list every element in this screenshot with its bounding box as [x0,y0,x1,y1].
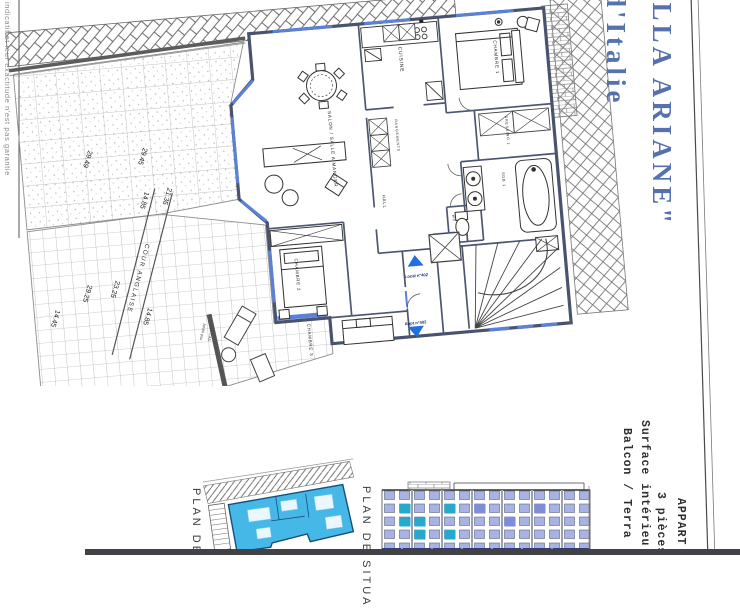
disclaimer-text: indicatif et leur exactitude n'est pas g… [3,2,12,176]
floor-plan-tilted-group: Local n°402 Appt n°402 SALON / SALLE A M… [4,0,632,408]
scan-edge-bar [85,549,740,555]
entry-closets [383,23,416,42]
bed-chambre3 [342,316,394,344]
mini-plan-left-label: PLAN DE [190,488,202,556]
info-surface: Surface intérieu [638,420,651,546]
mini-plan-right-label: PLAN DE SITUA [360,486,372,608]
terrace-upper [12,42,258,230]
info-pieces: 3 pièces [654,492,667,555]
info-balcon: Balcon / Terra [620,428,633,539]
rangements-closets [369,118,391,167]
label-wc: WC [451,214,456,222]
mini-facade-plan [382,482,590,555]
info-appart: APPART [674,498,687,545]
scanned-floor-plan-sheet: { "title": { "line1": "ILLA ARIANE\"", "… [0,0,740,555]
mini-level-plan [203,459,364,555]
sheet-subtitle: d'Italie [600,0,631,107]
sheet-title: ILLA ARIANE" [646,0,677,227]
elevator [429,232,461,263]
